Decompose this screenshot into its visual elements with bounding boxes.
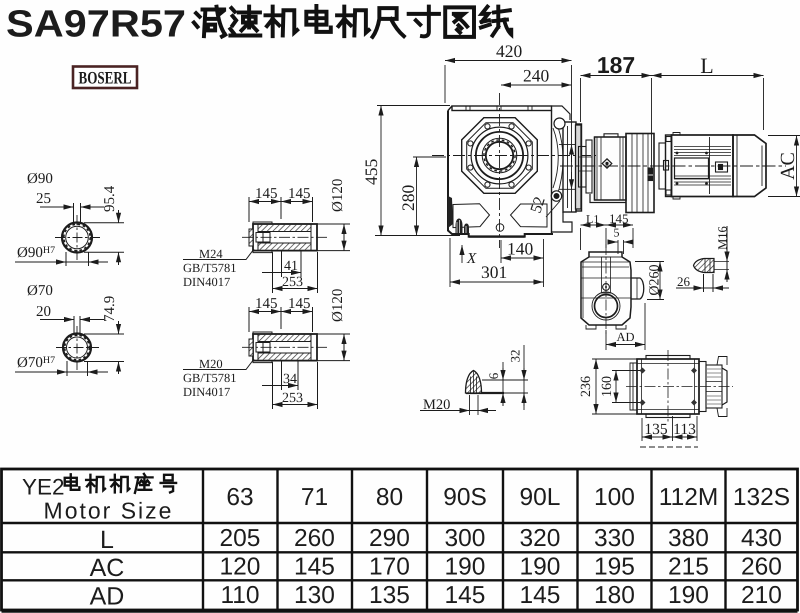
svg-text:X: X	[466, 251, 477, 267]
svg-text:26: 26	[677, 274, 691, 289]
svg-text:290: 290	[369, 525, 410, 552]
svg-text:110: 110	[220, 582, 259, 609]
svg-text:253: 253	[282, 391, 303, 406]
svg-text:210: 210	[741, 582, 782, 609]
svg-text:160: 160	[600, 376, 615, 397]
svg-text:71: 71	[301, 484, 328, 511]
svg-text:170: 170	[369, 554, 410, 581]
svg-text:Ø70H7: Ø70H7	[17, 355, 55, 371]
svg-text:AC: AC	[777, 152, 799, 180]
svg-text:L: L	[100, 526, 114, 554]
svg-text:74.9: 74.9	[102, 296, 118, 322]
svg-text:M20: M20	[423, 397, 450, 413]
svg-text:195: 195	[594, 554, 635, 581]
svg-text:187: 187	[597, 52, 635, 78]
svg-text:Motor Size: Motor Size	[44, 498, 174, 524]
svg-text:236: 236	[579, 376, 594, 397]
svg-text:380: 380	[668, 525, 709, 552]
svg-text:145: 145	[609, 211, 629, 226]
svg-text:190: 190	[520, 554, 561, 581]
svg-text:YE2: YE2	[22, 475, 65, 500]
svg-text:AD: AD	[90, 583, 125, 611]
svg-text:301: 301	[481, 262, 507, 282]
svg-text:M24: M24	[199, 247, 223, 261]
svg-text:180: 180	[594, 582, 635, 609]
svg-text:145: 145	[520, 582, 561, 609]
svg-text:280: 280	[398, 185, 418, 212]
svg-text:AD: AD	[616, 330, 634, 344]
svg-text:430: 430	[741, 525, 782, 552]
svg-text:52: 52	[528, 195, 549, 215]
svg-text:215: 215	[668, 554, 709, 581]
svg-text:455: 455	[361, 159, 381, 186]
svg-text:253: 253	[282, 275, 303, 290]
svg-text:Ø120: Ø120	[330, 289, 346, 322]
svg-text:90S: 90S	[443, 484, 487, 511]
svg-text:260: 260	[741, 554, 782, 581]
svg-text:300: 300	[445, 525, 486, 552]
svg-text:140: 140	[507, 239, 534, 259]
svg-text:20: 20	[36, 304, 51, 320]
svg-text:132S: 132S	[733, 484, 790, 511]
svg-text:135: 135	[369, 582, 410, 609]
svg-text:80: 80	[376, 484, 403, 511]
svg-text:34: 34	[283, 372, 297, 387]
svg-text:90L: 90L	[520, 484, 561, 511]
svg-text:32: 32	[508, 350, 523, 363]
svg-text:41: 41	[284, 259, 298, 274]
svg-text:145: 145	[445, 582, 486, 609]
svg-text:145: 145	[255, 186, 278, 202]
svg-text:95.4: 95.4	[102, 185, 118, 212]
svg-text:420: 420	[496, 41, 523, 61]
svg-text:240: 240	[523, 66, 550, 86]
svg-text:Ø260: Ø260	[648, 264, 663, 295]
svg-text:190: 190	[668, 582, 709, 609]
svg-text:DIN4017: DIN4017	[183, 275, 230, 289]
svg-text:L1: L1	[586, 212, 599, 226]
svg-text:M16: M16	[716, 226, 730, 250]
svg-text:M20: M20	[199, 357, 223, 371]
svg-text:113: 113	[673, 421, 696, 438]
svg-text:135: 135	[644, 421, 668, 438]
svg-text:Ø90H7: Ø90H7	[17, 245, 55, 261]
svg-text:Ø90: Ø90	[27, 171, 53, 187]
svg-text:145: 145	[294, 554, 335, 581]
svg-text:DIN4017: DIN4017	[183, 385, 230, 399]
svg-text:L: L	[700, 53, 713, 78]
svg-text:6: 6	[486, 372, 501, 379]
svg-text:Ø120: Ø120	[330, 179, 346, 212]
svg-text:145: 145	[288, 296, 311, 312]
svg-text:63: 63	[226, 484, 253, 511]
svg-text:BOSERL: BOSERL	[79, 68, 132, 88]
svg-text:112M: 112M	[659, 484, 718, 511]
svg-text:25: 25	[36, 191, 51, 207]
svg-text:260: 260	[294, 525, 335, 552]
svg-text:190: 190	[445, 554, 486, 581]
svg-text:GB/T5781: GB/T5781	[183, 261, 236, 275]
svg-text:320: 320	[520, 525, 561, 552]
svg-text:AC: AC	[90, 554, 125, 582]
svg-text:100: 100	[594, 484, 635, 511]
svg-text:330: 330	[594, 525, 635, 552]
svg-text:GB/T5781: GB/T5781	[183, 371, 236, 385]
svg-text:205: 205	[220, 525, 261, 552]
svg-text:145: 145	[255, 296, 278, 312]
svg-text:Ø70: Ø70	[27, 283, 53, 299]
svg-text:120: 120	[220, 554, 261, 581]
svg-text:145: 145	[288, 186, 311, 202]
svg-text:SA97R57: SA97R57	[6, 4, 186, 46]
svg-text:5: 5	[614, 226, 620, 240]
svg-text:130: 130	[294, 582, 335, 609]
